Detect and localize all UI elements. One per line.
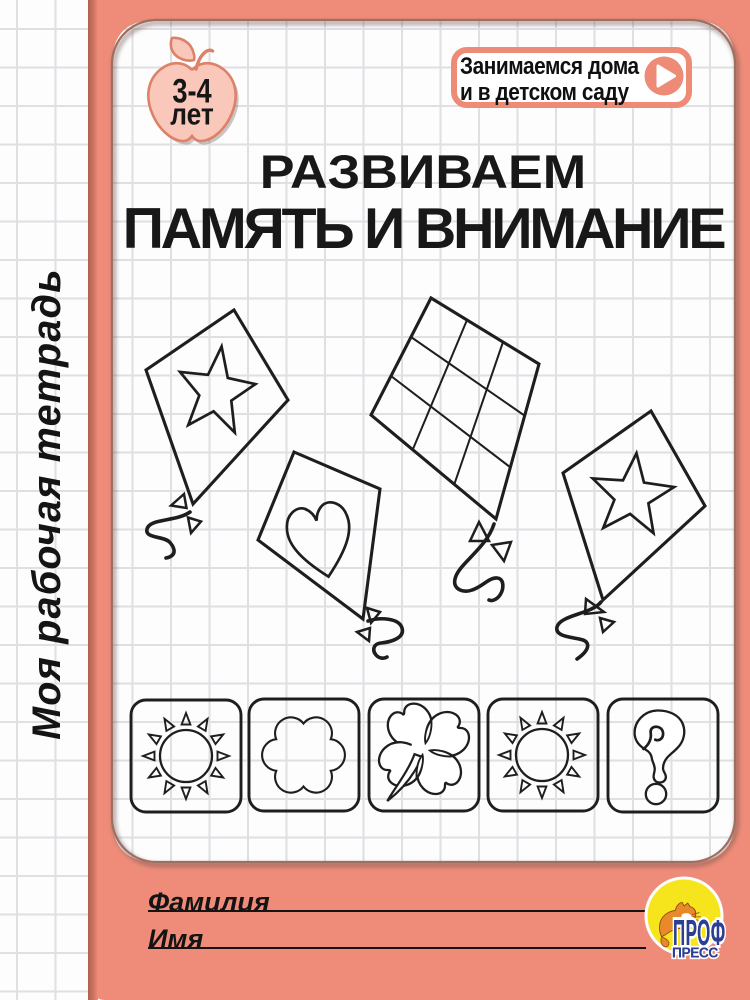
svg-text:ПРЕСС: ПРЕСС bbox=[672, 945, 719, 962]
